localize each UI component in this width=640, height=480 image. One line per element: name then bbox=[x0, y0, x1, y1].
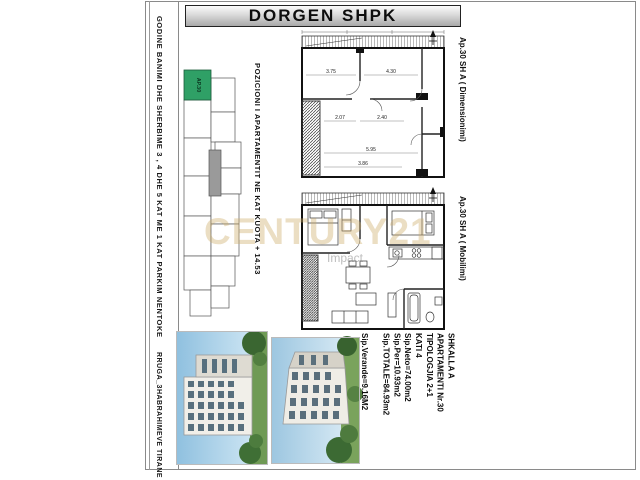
detail-veranda-area: Sip.Verande=9.16M2 bbox=[358, 333, 369, 475]
street-address-text: RRUGA_3HABRAHIMEVE TIRANE bbox=[155, 352, 162, 478]
veranda-band bbox=[302, 193, 444, 205]
svg-text:3.86: 3.86 bbox=[358, 161, 368, 167]
detail-total-area: Sip.TOTALE=84.93m2 bbox=[380, 333, 391, 475]
title-banner: DORGEN SHPK bbox=[185, 5, 461, 27]
floor-key-plan: AP.30 bbox=[182, 58, 246, 330]
outer-walls bbox=[302, 48, 444, 177]
detail-typology: TIPOLOGJIA 2+1 bbox=[423, 333, 434, 475]
detail-apartment: APARTAMENTI Nr.30 bbox=[434, 333, 445, 475]
balcony-hatched bbox=[302, 255, 318, 321]
dimension-line-top bbox=[302, 30, 444, 34]
highlighted-unit-label: AP.30 bbox=[195, 78, 201, 93]
building-render-1 bbox=[176, 331, 268, 465]
building-description-text: GODINE BANIMI DHE SHERBIME 3 , 4 DHE 5 K… bbox=[155, 16, 164, 338]
svg-text:3.75: 3.75 bbox=[326, 69, 336, 75]
svg-text:4.30: 4.30 bbox=[386, 69, 396, 75]
stair-core bbox=[209, 150, 221, 196]
building-render-2 bbox=[271, 337, 360, 464]
furnished-plan-label: Ap.30 SH A ( Mobilimi) bbox=[458, 196, 467, 281]
detail-net-area: Sip.Neto=74.00m2 bbox=[401, 333, 412, 475]
balcony-hatched bbox=[302, 101, 320, 175]
svg-text:5.95: 5.95 bbox=[366, 147, 376, 153]
dimensional-plan-label: Ap.30 SH A ( Dimensionimi) bbox=[458, 37, 467, 142]
company-title: DORGEN SHPK bbox=[249, 6, 398, 26]
position-caption: POZICIONI I APARTAMENTIT NE KAT KUOTA + … bbox=[253, 63, 262, 275]
sheet-inner-border-line bbox=[149, 1, 150, 470]
detail-staircase: SHKALLA A bbox=[445, 333, 456, 475]
svg-text:2.40: 2.40 bbox=[377, 115, 387, 121]
plan-sheet: DORGEN SHPK GODINE BANIMI DHE SHERBIME 3… bbox=[0, 0, 640, 480]
detail-per-area: Sip.Per=10.93m2 bbox=[391, 333, 402, 475]
apartment-details: SHKALLA A APARTAMENTI Nr.30 TIPOLOGJIA 2… bbox=[358, 333, 455, 475]
floor-plan-dimensional: 3.75 4.30 2.07 2.40 5.95 3.86 bbox=[292, 29, 455, 186]
veranda-band bbox=[302, 36, 444, 48]
floor-plan-furnished bbox=[292, 189, 455, 332]
svg-text:2.07: 2.07 bbox=[335, 115, 345, 121]
detail-floor: KATI 4 bbox=[412, 333, 423, 475]
outer-walls bbox=[302, 205, 444, 329]
